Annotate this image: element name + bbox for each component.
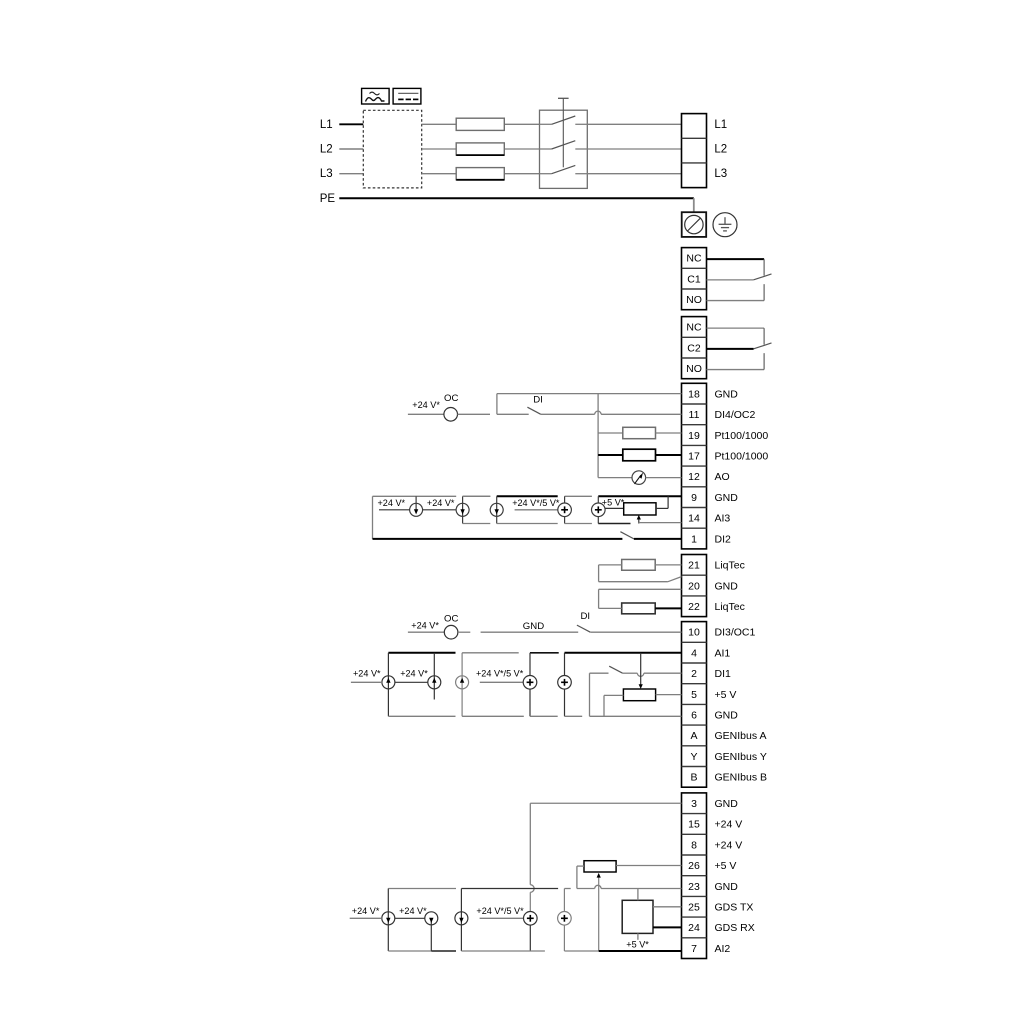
svg-text:22: 22 — [688, 601, 700, 613]
svg-text:GND: GND — [715, 388, 739, 400]
svg-text:AI3: AI3 — [715, 513, 731, 525]
svg-text:+24 V*/5 V*: +24 V*/5 V* — [476, 668, 524, 678]
svg-text:DI4/OC2: DI4/OC2 — [715, 409, 756, 421]
svg-text:8: 8 — [691, 839, 697, 851]
svg-text:PE: PE — [320, 193, 336, 205]
svg-text:AO: AO — [715, 471, 730, 483]
svg-text:L2: L2 — [320, 143, 333, 155]
svg-text:NC: NC — [686, 322, 702, 334]
svg-text:+5 V*: +5 V* — [626, 939, 649, 949]
svg-text:+24 V*: +24 V* — [427, 498, 455, 508]
svg-text:OC: OC — [444, 613, 458, 624]
svg-text:2: 2 — [691, 668, 697, 680]
svg-text:21: 21 — [688, 560, 700, 572]
svg-text:3: 3 — [691, 798, 697, 810]
svg-text:+24 V: +24 V — [715, 839, 743, 851]
svg-text:GDS RX: GDS RX — [715, 922, 755, 934]
svg-text:20: 20 — [688, 580, 700, 592]
svg-text:A: A — [690, 730, 697, 742]
svg-text:GENIbus A: GENIbus A — [715, 730, 767, 742]
svg-text:12: 12 — [688, 471, 700, 483]
svg-text:18: 18 — [688, 388, 700, 400]
svg-text:LiqTec: LiqTec — [715, 601, 745, 613]
svg-text:L1: L1 — [714, 119, 727, 131]
svg-text:GND: GND — [523, 621, 544, 632]
svg-text:L3: L3 — [320, 168, 333, 180]
svg-text:+24 V*: +24 V* — [352, 906, 380, 916]
svg-text:NC: NC — [686, 253, 702, 265]
svg-text:11: 11 — [689, 409, 700, 421]
svg-text:GND: GND — [715, 798, 739, 810]
svg-text:+24 V*: +24 V* — [412, 400, 440, 410]
svg-text:GND: GND — [715, 881, 739, 893]
svg-text:Y: Y — [690, 751, 697, 763]
svg-text:+5 V: +5 V — [715, 860, 737, 872]
svg-text:26: 26 — [688, 860, 700, 872]
svg-text:1: 1 — [691, 533, 697, 545]
svg-text:GENIbus B: GENIbus B — [715, 772, 768, 784]
svg-text:Pt100/1000: Pt100/1000 — [715, 430, 769, 442]
svg-text:+24 V*: +24 V* — [399, 906, 427, 916]
svg-text:C2: C2 — [687, 342, 701, 354]
svg-text:L3: L3 — [714, 168, 727, 180]
svg-text:6: 6 — [691, 709, 697, 721]
svg-text:LiqTec: LiqTec — [715, 560, 745, 572]
svg-text:Pt100/1000: Pt100/1000 — [715, 450, 769, 462]
svg-text:DI1: DI1 — [715, 668, 732, 680]
svg-text:4: 4 — [691, 647, 697, 659]
svg-text:AI2: AI2 — [715, 943, 731, 955]
svg-text:B: B — [690, 772, 697, 784]
svg-text:+24 V*: +24 V* — [400, 668, 428, 678]
svg-text:19: 19 — [688, 430, 700, 442]
svg-text:+5 V*: +5 V* — [602, 497, 625, 507]
svg-text:GND: GND — [715, 709, 739, 721]
svg-text:25: 25 — [688, 901, 700, 913]
svg-text:DI3/OC1: DI3/OC1 — [715, 627, 756, 639]
svg-text:24: 24 — [688, 922, 700, 934]
svg-text:15: 15 — [688, 819, 700, 831]
svg-text:DI: DI — [533, 394, 543, 405]
svg-text:9: 9 — [691, 492, 697, 504]
svg-text:GDS TX: GDS TX — [715, 901, 754, 913]
svg-text:NO: NO — [686, 294, 702, 306]
svg-text:10: 10 — [688, 627, 700, 639]
svg-text:+24 V*: +24 V* — [353, 668, 381, 678]
svg-text:GND: GND — [715, 492, 739, 504]
svg-text:7: 7 — [691, 943, 697, 955]
svg-text:C1: C1 — [687, 273, 701, 285]
svg-text:17: 17 — [688, 450, 700, 462]
svg-text:+24 V*: +24 V* — [378, 498, 406, 508]
svg-text:L2: L2 — [714, 143, 727, 155]
svg-text:+24 V*: +24 V* — [411, 621, 439, 631]
svg-text:OC: OC — [444, 393, 458, 404]
svg-text:L1: L1 — [320, 119, 333, 131]
svg-text:DI: DI — [581, 611, 591, 622]
svg-text:5: 5 — [691, 689, 697, 701]
svg-text:NO: NO — [686, 363, 702, 375]
svg-text:DI2: DI2 — [715, 533, 732, 545]
svg-text:+24 V*/5 V*: +24 V*/5 V* — [512, 498, 560, 508]
svg-text:+24 V*/5 V*: +24 V*/5 V* — [476, 906, 524, 916]
svg-text:+5 V: +5 V — [715, 689, 737, 701]
svg-text:AI1: AI1 — [715, 647, 731, 659]
svg-text:+24 V: +24 V — [715, 819, 743, 831]
svg-text:14: 14 — [688, 513, 700, 525]
svg-text:GND: GND — [715, 580, 739, 592]
svg-text:GENIbus Y: GENIbus Y — [715, 751, 767, 763]
svg-text:23: 23 — [688, 881, 700, 893]
